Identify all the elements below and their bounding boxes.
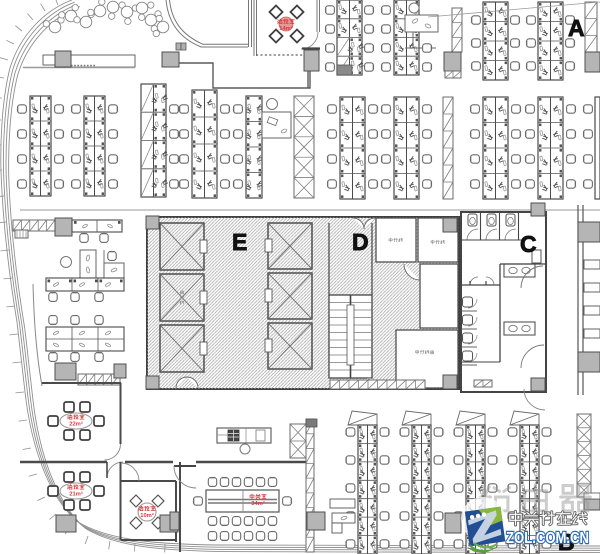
svg-text:ZOL.COM.CN: ZOL.COM.CN: [506, 530, 589, 547]
svg-text:D: D: [352, 229, 369, 255]
svg-text:34m²: 34m²: [251, 500, 265, 507]
svg-text:14m²: 14m²: [279, 25, 293, 32]
svg-text:C: C: [520, 231, 537, 257]
svg-text:A: A: [568, 15, 585, 41]
svg-text:21m²: 21m²: [69, 490, 83, 497]
svg-text:22m²: 22m²: [69, 420, 83, 427]
svg-text:E: E: [232, 229, 247, 255]
svg-text:10m²: 10m²: [140, 512, 154, 519]
